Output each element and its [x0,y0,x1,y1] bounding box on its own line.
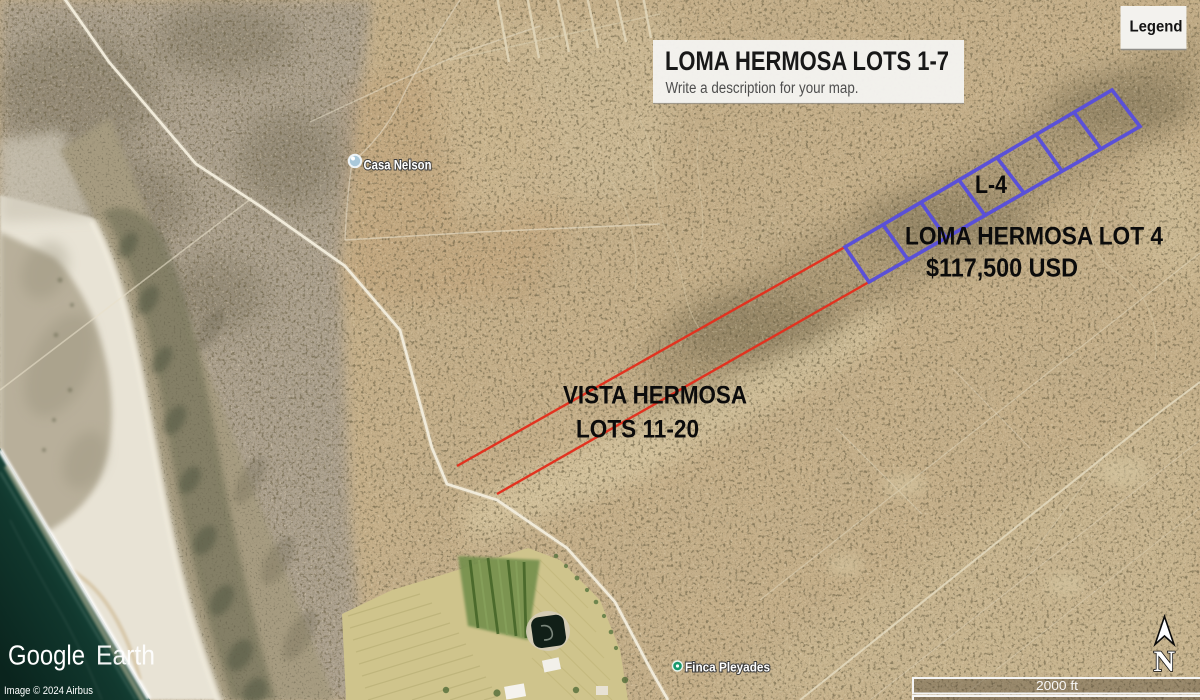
svg-text:L-4: L-4 [975,171,1007,199]
svg-text:Write a description for your m: Write a description for your map. [666,80,859,97]
svg-text:LOMA HERMOSA LOTS 1-7: LOMA HERMOSA LOTS 1-7 [665,46,949,76]
svg-text:N: N [1154,645,1176,678]
svg-text:LOMA HERMOSA LOT 4: LOMA HERMOSA LOT 4 [905,223,1163,251]
svg-text:LOTS 11-20: LOTS 11-20 [576,416,699,444]
svg-text:Legend: Legend [1130,19,1183,36]
svg-text:Google: Google [8,640,85,671]
svg-text:Image © 2024 Airbus: Image © 2024 Airbus [4,685,93,697]
svg-text:2000 ft: 2000 ft [1036,678,1078,693]
svg-text:Casa Nelson: Casa Nelson [364,158,432,173]
svg-text:VISTA HERMOSA: VISTA HERMOSA [563,382,747,410]
svg-text:Finca Pleyades: Finca Pleyades [685,661,770,675]
svg-text:$117,500 USD: $117,500 USD [926,253,1078,283]
svg-text:Earth: Earth [96,640,155,671]
